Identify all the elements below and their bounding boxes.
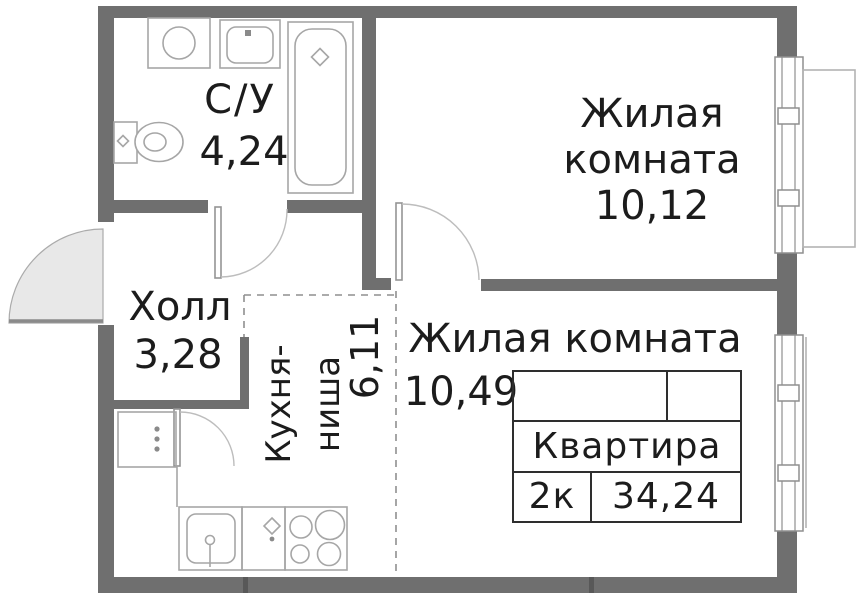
wall-right-top bbox=[777, 6, 797, 57]
room-area-kitchen: 6,11 bbox=[345, 315, 387, 400]
stove bbox=[285, 507, 347, 570]
washing-machine bbox=[148, 18, 210, 68]
wall-left-upper bbox=[98, 6, 114, 222]
wall-hall-bottom bbox=[114, 400, 249, 409]
wall-bathroom-right bbox=[362, 18, 376, 278]
info-table-cell-blank2 bbox=[666, 372, 740, 420]
room-area-hall: 3,28 bbox=[133, 333, 222, 377]
room-label-kitchen-line1: Кухня- bbox=[255, 344, 304, 463]
livingroom1-door bbox=[396, 203, 479, 280]
wall-right-bottom bbox=[777, 531, 797, 593]
room-label-kitchen: Кухня- ниша bbox=[255, 344, 353, 463]
wall-hall-right bbox=[240, 337, 249, 409]
room-area-living1: 10,12 bbox=[563, 183, 740, 229]
window-mullion bbox=[778, 190, 799, 206]
room-label-hall: Холл bbox=[128, 285, 231, 329]
room-label-living1: Жилая комната 10,12 bbox=[563, 91, 740, 229]
room-label-living1-line1: Жилая bbox=[563, 91, 740, 137]
wall-top bbox=[98, 6, 797, 18]
wall-left-lower bbox=[98, 325, 114, 585]
room-label-living1-line2: комната bbox=[563, 137, 740, 183]
bathtub bbox=[288, 22, 353, 193]
kitchen-sink bbox=[179, 507, 242, 570]
wall-cap bbox=[362, 278, 391, 290]
balcony-outline bbox=[803, 70, 855, 247]
room-area-living2: 10,49 bbox=[404, 370, 519, 414]
window-mullion bbox=[778, 465, 799, 481]
wall-room-divider bbox=[481, 279, 797, 291]
window-1 bbox=[775, 57, 803, 253]
info-table-row-values: 2к 34,24 bbox=[514, 471, 740, 521]
room-area-bathroom: 4,24 bbox=[199, 130, 288, 174]
room-label-bathroom: С/У bbox=[204, 78, 276, 122]
wall-right-mid bbox=[777, 253, 797, 335]
window-mullion bbox=[778, 108, 799, 124]
hall-door bbox=[174, 409, 234, 466]
bathroom-door bbox=[215, 207, 287, 278]
room-label-living2: Жилая комната bbox=[408, 317, 741, 361]
bathroom-sink bbox=[220, 20, 280, 68]
wardrobe bbox=[118, 412, 177, 507]
floor-plan: С/У 4,24 Жилая комната 10,12 Холл 3,28 К… bbox=[0, 0, 858, 600]
wall-bathroom-bottom-right bbox=[287, 200, 362, 213]
info-table-row-title: Квартира bbox=[514, 420, 740, 470]
info-table-title: Квартира bbox=[514, 422, 740, 470]
entrance-door-swing bbox=[9, 229, 103, 323]
wall-bottom bbox=[98, 577, 797, 593]
info-table-total-area: 34,24 bbox=[590, 473, 740, 521]
wall-bathroom-bottom-left bbox=[114, 200, 208, 213]
toilet bbox=[114, 122, 183, 163]
window-mullion bbox=[778, 385, 799, 401]
kitchen-faucet-unit bbox=[242, 507, 285, 570]
wall-joint-tick-1 bbox=[243, 577, 248, 593]
info-table-rooms-count: 2к bbox=[514, 473, 590, 521]
info-table-cell-blank1 bbox=[514, 372, 666, 420]
info-table-row-blank bbox=[514, 372, 740, 420]
wall-joint-tick-2 bbox=[589, 577, 594, 593]
window-2 bbox=[775, 335, 803, 531]
info-table: Квартира 2к 34,24 bbox=[512, 370, 742, 523]
